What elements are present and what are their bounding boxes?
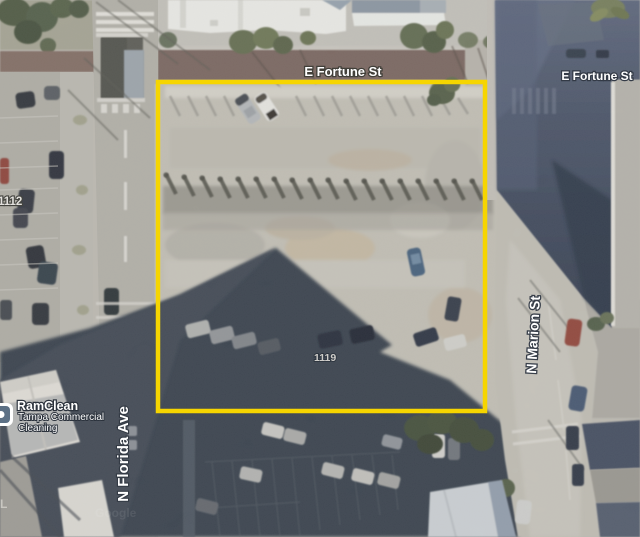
svg-text:1119: 1119 (314, 352, 336, 364)
svg-text:Cleaning: Cleaning (18, 423, 57, 434)
svg-text:RamClean: RamClean (17, 399, 78, 413)
svg-text:Tampa Commercial: Tampa Commercial (18, 412, 104, 423)
svg-text:1112: 1112 (0, 196, 22, 208)
svg-text:Google: Google (95, 506, 137, 520)
svg-text:E Fortune St: E Fortune St (561, 69, 632, 83)
svg-text:L: L (0, 497, 7, 511)
svg-text:N Florida Ave: N Florida Ave (115, 406, 132, 502)
svg-text:E Fortune St: E Fortune St (304, 64, 382, 79)
